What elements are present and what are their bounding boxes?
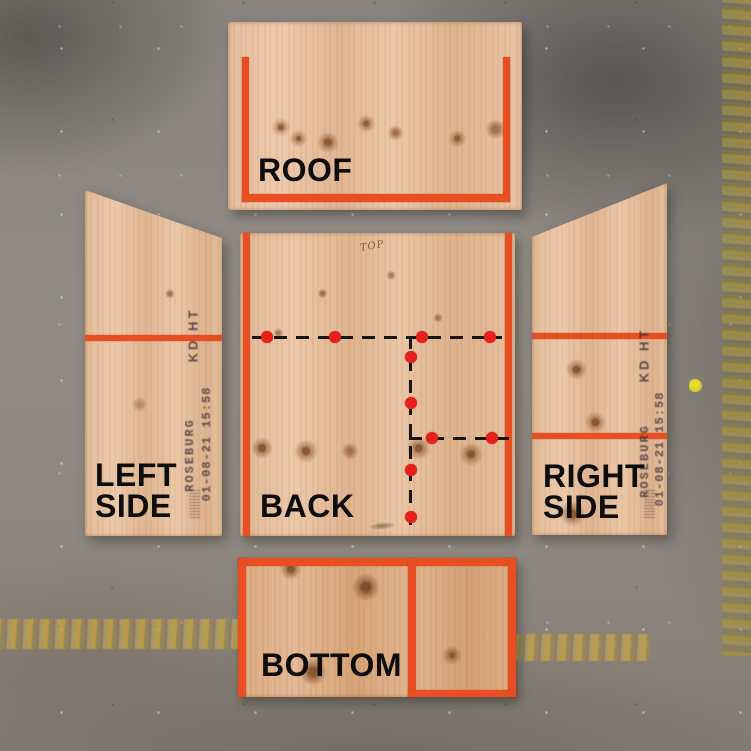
- red-assembly-dot: [486, 432, 498, 444]
- part-label-bottom: BOTTOM: [261, 650, 402, 681]
- tape-left-side: [85, 335, 222, 341]
- yellow-floor-line-right: [514, 634, 650, 661]
- tape-roof-left: [242, 57, 249, 202]
- part-label-roof: ROOF: [258, 155, 352, 186]
- lumber-grade-stamp: KD HT: [637, 328, 652, 383]
- plywood-parts-photo: ROOF KD HT ROSEBURG 01-08-21 15:58 LEFT …: [0, 0, 751, 751]
- tape-bottom-right: [508, 558, 516, 697]
- red-assembly-dot: [484, 331, 496, 343]
- small-ink-stamp: [189, 488, 200, 518]
- part-label-back: BACK: [260, 491, 354, 522]
- yellow-floor-line-vertical: [722, 0, 751, 656]
- date-stamp: 01-08-21 15:58: [653, 392, 667, 507]
- bottom-panel: BOTTOM: [238, 558, 516, 697]
- red-assembly-dot: [405, 511, 417, 523]
- red-assembly-dot: [261, 331, 273, 343]
- mill-stamp: ROSEBURG: [183, 418, 197, 492]
- red-assembly-dot: [405, 351, 417, 363]
- red-assembly-dot: [416, 331, 428, 343]
- roof-panel: ROOF: [228, 22, 522, 210]
- left-side-plywood: KD HT ROSEBURG 01-08-21 15:58 LEFT SIDE: [85, 190, 222, 536]
- assembly-dashed-line: [252, 336, 502, 339]
- right-side-plywood: KD HT ROSEBURG 01-08-21 15:58 RIGHT SIDE: [532, 183, 667, 535]
- part-label-right-side: RIGHT SIDE: [543, 461, 645, 523]
- red-assembly-dot: [426, 432, 438, 444]
- left-side-panel: KD HT ROSEBURG 01-08-21 15:58 LEFT SIDE: [85, 190, 222, 536]
- part-label-left-side: LEFT SIDE: [95, 460, 177, 522]
- small-ink-stamp: [644, 488, 655, 518]
- lumber-grade-stamp: KD HT: [186, 308, 201, 363]
- red-assembly-dot: [329, 331, 341, 343]
- yellow-paint-chip: [689, 379, 702, 392]
- tape-bottom-top: [238, 558, 516, 566]
- tape-bottom-lower-right: [408, 690, 516, 697]
- tape-roof-right: [503, 57, 510, 202]
- tape-bottom-divider: [408, 558, 416, 697]
- date-stamp: 01-08-21 15:58: [200, 387, 214, 502]
- red-assembly-dot: [405, 464, 417, 476]
- tape-roof-bottom: [242, 194, 510, 202]
- yellow-floor-line-left: [0, 619, 240, 649]
- assembly-dashed-line: [409, 336, 412, 534]
- back-panel: TOP BACK: [240, 233, 515, 536]
- right-side-panel: KD HT ROSEBURG 01-08-21 15:58 RIGHT SIDE: [532, 183, 667, 535]
- red-assembly-dot: [405, 397, 417, 409]
- tape-bottom-left: [238, 558, 246, 697]
